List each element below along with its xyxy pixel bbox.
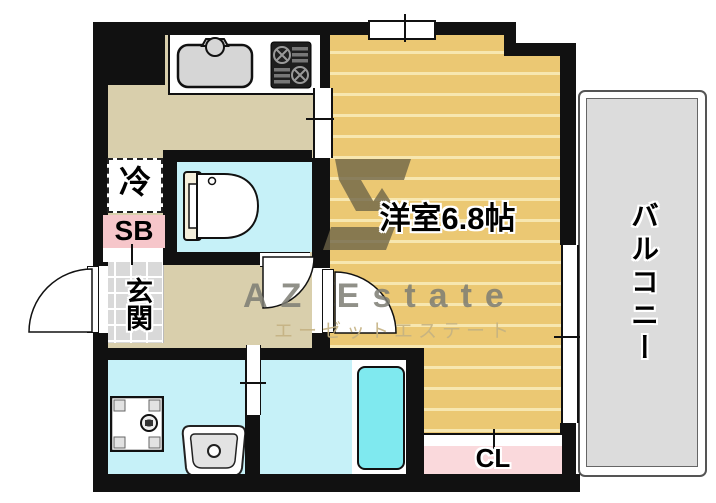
wall-toilet-top — [163, 150, 312, 162]
kitchen-pass-window — [313, 88, 333, 158]
wall-block-topleft — [93, 22, 165, 85]
floor-plan: バルコニー CL 冷 SB 玄関 — [0, 0, 716, 503]
closet-label: CL — [424, 445, 562, 473]
bath-door-opening — [246, 345, 261, 415]
entrance-door-arc — [28, 268, 94, 334]
washing-machine-pan-icon — [110, 396, 164, 452]
window-balcony-tick — [554, 336, 580, 338]
wall-bath-right — [406, 348, 424, 492]
shoe-box-label: SB — [103, 216, 165, 245]
main-room-label: 洋室6.8帖 — [360, 203, 535, 243]
bath-door-tick — [240, 382, 266, 384]
toilet-icon — [182, 168, 266, 246]
entrance-label: 玄関 — [113, 268, 151, 340]
refrigerator-label: 冷 — [107, 166, 163, 200]
watermark-brand-kana: エーゼットエステート — [274, 316, 474, 343]
watermark-brand: AZ Estate — [243, 277, 523, 316]
gas-stove-icon — [270, 41, 312, 89]
wall-right-upper — [560, 43, 576, 245]
washbasin-icon — [180, 424, 248, 478]
kitchen-pass-tick — [306, 118, 334, 120]
window-top — [368, 20, 436, 40]
kitchen-sink-icon — [176, 37, 256, 91]
wall-toilet-left — [163, 150, 177, 265]
wall-bottom — [93, 474, 580, 492]
wall-toilet-bottom — [163, 252, 260, 265]
entrance-step-tick — [131, 244, 133, 265]
entrance-step — [103, 248, 163, 262]
balcony-label: バルコニー — [600, 198, 658, 368]
bathtub-icon — [357, 366, 405, 470]
window-balcony — [561, 245, 579, 423]
window-top-tick — [404, 14, 406, 42]
